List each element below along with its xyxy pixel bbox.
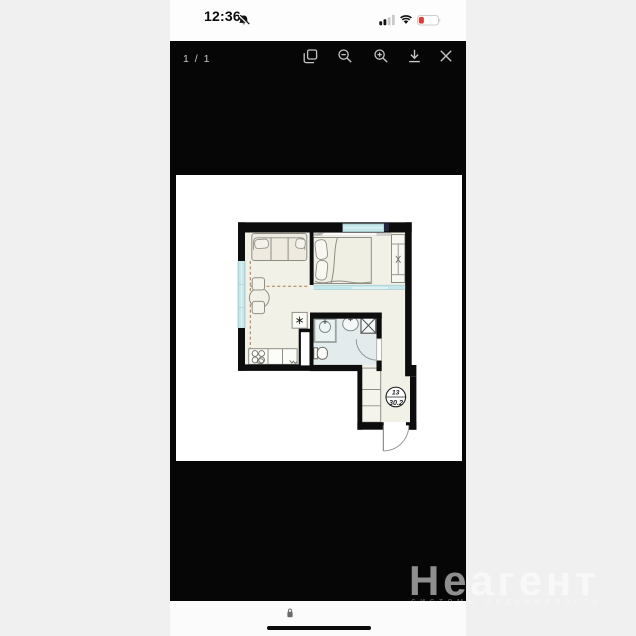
svg-text:30.2: 30.2 [389,398,403,407]
svg-text:13: 13 [391,389,399,396]
